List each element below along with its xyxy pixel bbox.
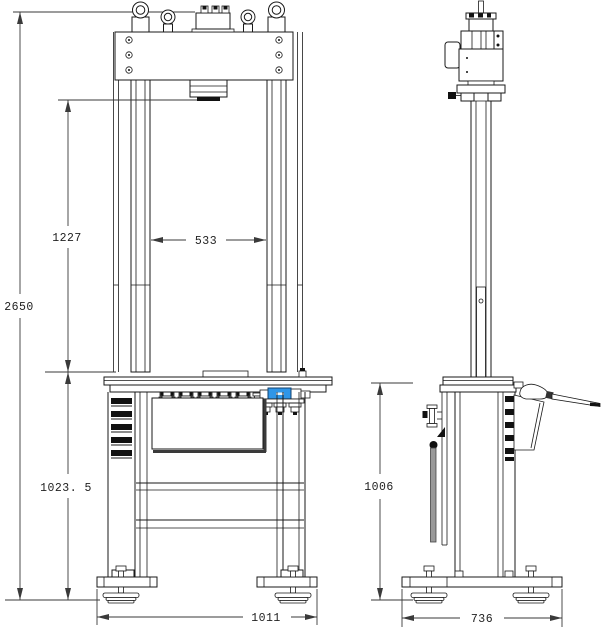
dim-side-table-height: 1006 [364, 383, 394, 600]
side-view [402, 1, 600, 603]
ram-piston [190, 80, 227, 101]
terminal-box [192, 6, 234, 32]
dim-front-base-width: 1011 [97, 612, 317, 625]
vent-slots-front [111, 398, 132, 458]
slanted-bracket-panel [514, 395, 544, 450]
front-view [13, 2, 332, 603]
dim-column-spacing-label: 533 [195, 235, 217, 248]
crossbeam [115, 32, 293, 80]
two-view-machine-drawing: 2650 1227 533 1023. 5 1011 [0, 0, 606, 631]
side-table [440, 377, 523, 392]
dim-side-base-depth-label: 736 [471, 613, 493, 626]
side-head-assembly [445, 1, 505, 101]
dim-ram-to-table: 1227 [52, 100, 82, 372]
front-pedestal [97, 392, 317, 603]
dim-front-base-width-label: 1011 [251, 612, 281, 625]
dim-column-spacing: 533 [151, 235, 266, 248]
dim-overall-height-label: 2650 [4, 301, 34, 314]
side-column [471, 101, 491, 377]
dim-table-to-floor: 1023. 5 [40, 372, 92, 600]
access-window [152, 398, 266, 452]
dim-side-table-height-label: 1006 [364, 481, 394, 494]
gas-strut [431, 448, 437, 542]
dim-ram-to-table-label: 1227 [52, 232, 82, 245]
dim-overall-height: 2650 [4, 12, 34, 600]
cross-rails [136, 483, 304, 528]
side-pedestal [402, 384, 600, 603]
side-knob [423, 405, 443, 427]
dim-table-to-floor-label: 1023. 5 [40, 482, 92, 495]
engineering-drawing-canvas: 2650 1227 533 1023. 5 1011 [0, 0, 606, 631]
dim-side-base-depth: 736 [402, 613, 562, 626]
front-left-column [131, 32, 150, 372]
front-right-column [267, 32, 286, 372]
